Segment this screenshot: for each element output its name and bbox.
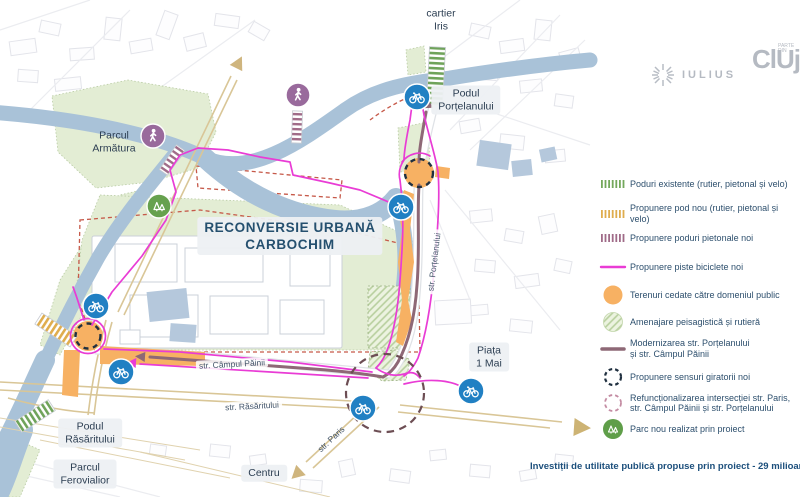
bike-marker xyxy=(83,293,109,319)
bike-marker xyxy=(404,84,430,110)
modernization-swatch-icon xyxy=(596,343,630,355)
iulius-logo-text: IULIUS xyxy=(682,69,736,81)
page-title: RECONVERSIE URBANĂ CARBOCHIM xyxy=(197,217,382,255)
roundabout-swatch-icon xyxy=(596,366,630,388)
label-podul-portelanului: Podul Porțelanului xyxy=(431,86,500,115)
legend-label: Propunere piste biciclete noi xyxy=(630,262,800,273)
label-parcul-ferovialior: Parcul Ferovialior xyxy=(53,460,116,489)
arrow-east xyxy=(573,418,591,437)
landscaping-swatch-icon xyxy=(596,311,630,333)
cluj-logo-smalltext: PARTE DIN xyxy=(778,44,794,54)
legend-item-new-park: Parc nou realizat prin proiect xyxy=(596,417,800,441)
label-cartier-iris: cartier Iris xyxy=(426,8,455,33)
legend-label: Terenuri cedate către domeniul public xyxy=(630,290,800,301)
legend-label: Amenajare peisagistică și rutieră xyxy=(630,317,800,328)
bridge-pedestrian-new-1 xyxy=(291,111,302,143)
urban-plan-map: cartier Iris Podul Porțelanului Parcul A… xyxy=(0,0,800,497)
pedestrian-marker xyxy=(141,124,165,148)
iulius-logo: IULIUS xyxy=(650,62,736,88)
bike-marker xyxy=(458,378,484,404)
legend-item-bike-lanes: Propunere piste biciclete noi xyxy=(596,261,800,273)
logos: IULIUS ClUj PARTE DIN xyxy=(650,38,800,88)
legend-label: Propunere sensuri giratorii noi xyxy=(630,372,800,383)
legend-label: Poduri existente (rutier, pietonal și ve… xyxy=(630,179,800,190)
new-park-swatch-icon xyxy=(596,417,630,441)
legend-item-pedestrian-bridges: Propunere poduri pietonale noi xyxy=(596,232,800,244)
legend-label: Modernizarea str. Porțelanului și str. C… xyxy=(630,338,800,359)
pedestrian-marker xyxy=(286,83,310,107)
legend-item-public-land: Terenuri cedate către domeniul public xyxy=(596,284,800,306)
legend-item-modernization: Modernizarea str. Porțelanului și str. C… xyxy=(596,338,800,359)
investment-note: Investiții de utilitate publică propuse … xyxy=(530,461,800,472)
park-marker xyxy=(147,194,171,218)
existing-bridge-swatch-icon xyxy=(596,178,630,190)
legend-item-new-bridge: Propunere pod nou (rutier, pietonal și v… xyxy=(596,203,800,224)
legend-item-intersection: Refuncționalizarea intersecției str. Par… xyxy=(596,392,800,414)
bike-lane-swatch-icon xyxy=(596,261,630,273)
arrow-north-iris xyxy=(230,53,248,71)
label-centru: Centru xyxy=(241,465,287,482)
legend-item-roundabouts: Propunere sensuri giratorii noi xyxy=(596,366,800,388)
legend-label: Refuncționalizarea intersecției str. Par… xyxy=(630,393,800,414)
legend-item-existing-bridges: Poduri existente (rutier, pietonal și ve… xyxy=(596,178,800,190)
legend-label: Propunere poduri pietonale noi xyxy=(630,233,800,244)
label-podul-rasaritului: Podul Răsăritului xyxy=(58,419,122,448)
bike-marker xyxy=(108,359,134,385)
label-parcul-armatura: Parcul Armătura xyxy=(92,130,135,155)
iulius-starburst-icon xyxy=(650,62,676,88)
pedestrian-bridge-swatch-icon xyxy=(596,232,630,244)
new-bridge-swatch-icon xyxy=(596,208,630,220)
bike-marker xyxy=(350,395,376,421)
legend-label: Propunere pod nou (rutier, pietonal și v… xyxy=(630,203,800,224)
railway-lines xyxy=(0,418,330,497)
legend-label: Parc nou realizat prin proiect xyxy=(630,424,800,435)
green-bridge-flank-north xyxy=(406,46,426,75)
legend-item-landscaping: Amenajare peisagistică și rutieră xyxy=(596,311,800,333)
bike-marker xyxy=(388,194,414,220)
intersection-swatch-icon xyxy=(596,392,630,414)
public-land-swatch-icon xyxy=(596,284,630,306)
label-piata-1-mai: Piața 1 Mai xyxy=(469,343,509,372)
